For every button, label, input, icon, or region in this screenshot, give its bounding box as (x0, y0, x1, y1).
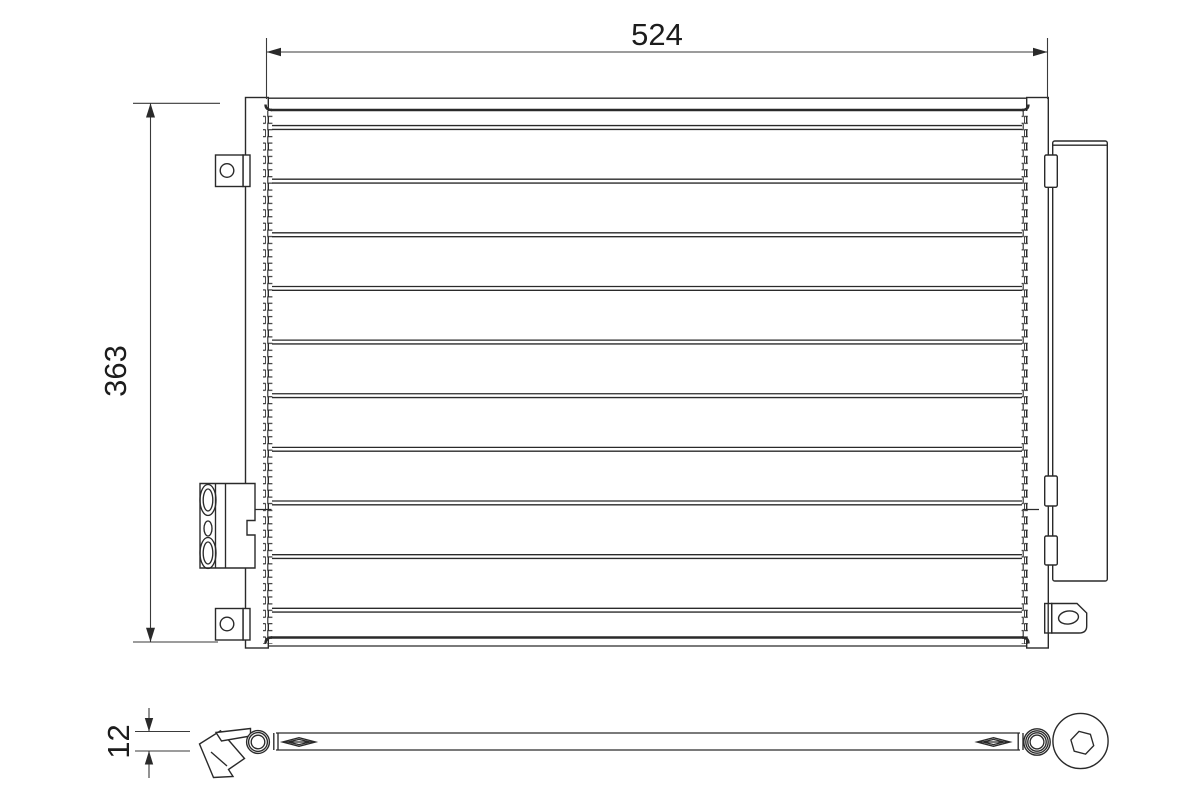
technical-drawing-canvas: 524 363 (0, 0, 1200, 800)
mounting-bracket-bottom-left (216, 609, 251, 641)
arrowhead-right (1033, 48, 1048, 56)
mounting-bracket-bottom-right (1045, 604, 1087, 634)
arrowhead-bottom (146, 628, 155, 642)
arrowhead-down (145, 718, 153, 732)
tube-lines (272, 126, 1022, 612)
flow-symbol-left (283, 738, 316, 747)
side-core (274, 733, 1023, 750)
drier-clip-bottom (1045, 536, 1058, 565)
depth-dimension-label: 12 (101, 724, 136, 758)
bracket-hole (220, 164, 234, 178)
arrowhead-up (145, 751, 153, 765)
dimension-width: 524 (267, 17, 1048, 99)
connection-block (200, 484, 255, 569)
drier-end-cap (1053, 713, 1108, 768)
mounting-bracket-top-left (216, 155, 251, 187)
front-view (200, 98, 1107, 649)
arrowhead-top (146, 103, 155, 117)
side-view (200, 713, 1109, 777)
width-dimension-label: 524 (631, 17, 683, 52)
flow-symbol-right (977, 738, 1010, 747)
fin-serration-left (263, 111, 272, 644)
bracket-hole (220, 617, 234, 631)
bottom-tube (266, 638, 1029, 644)
drier-clip-middle (1045, 476, 1058, 506)
receiver-drier (1053, 141, 1108, 581)
dimension-depth: 12 (101, 708, 190, 778)
arrowhead-left (267, 48, 282, 56)
side-bracket-left (200, 729, 251, 778)
side-fitting-right (1024, 729, 1050, 755)
height-dimension-label: 363 (98, 345, 133, 397)
drier-clip-top (1045, 155, 1058, 187)
fin-serration-right (1022, 111, 1028, 644)
side-fitting-left (247, 731, 270, 754)
condenser-drawing: 524 363 (0, 0, 1200, 800)
top-tube (266, 105, 1029, 111)
